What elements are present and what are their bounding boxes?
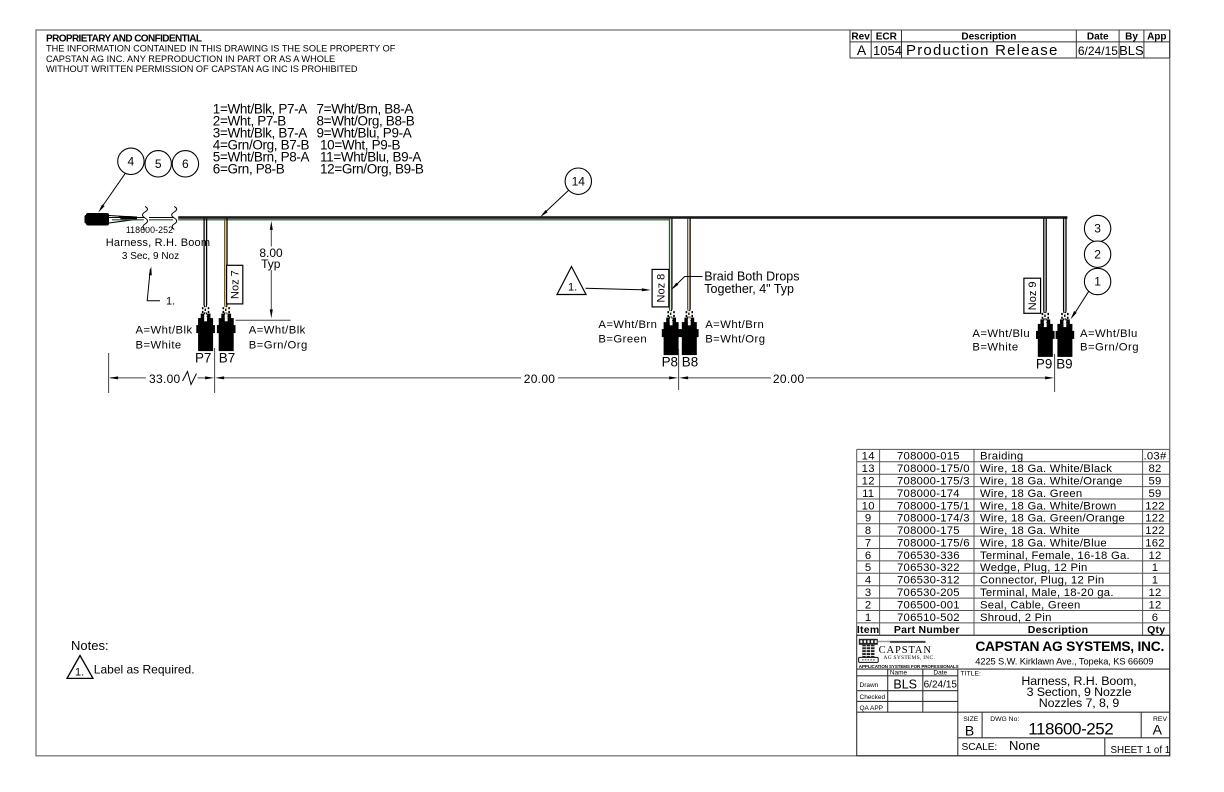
svg-text:14: 14 <box>862 451 875 463</box>
svg-text:Noz 8: Noz 8 <box>655 274 667 303</box>
svg-text:2: 2 <box>1094 247 1101 261</box>
svg-text:B=White: B=White <box>136 340 182 352</box>
svg-text:A=Wht/Blu: A=Wht/Blu <box>972 328 1030 340</box>
svg-text:B9: B9 <box>1056 357 1072 372</box>
svg-text:Label as Required.: Label as Required. <box>94 663 195 677</box>
svg-text:708000-175: 708000-175 <box>897 525 960 537</box>
svg-text:WITHOUT WRITTEN PERMISSION OF: WITHOUT WRITTEN PERMISSION OF CAPSTAN AG… <box>46 64 358 74</box>
svg-text:Notes:: Notes: <box>71 638 109 653</box>
svg-text:706530-336: 706530-336 <box>897 550 960 562</box>
svg-text:Wire, 18 Ga. White/Orange: Wire, 18 Ga. White/Orange <box>980 476 1123 488</box>
svg-text:59: 59 <box>1148 488 1161 500</box>
svg-text:706530-322: 706530-322 <box>897 562 960 574</box>
svg-text:1.: 1. <box>568 282 577 294</box>
svg-text:B=White: B=White <box>972 342 1018 354</box>
svg-text:DWG No:: DWG No: <box>990 716 1019 723</box>
svg-text:Wire, 18 Ga. White/Blue: Wire, 18 Ga. White/Blue <box>980 537 1107 549</box>
svg-text:B=Grn/Org: B=Grn/Org <box>249 340 308 352</box>
svg-text:Wire, 18 Ga. White/Brown: Wire, 18 Ga. White/Brown <box>980 500 1117 512</box>
svg-text:Seal, Cable, Green: Seal, Cable, Green <box>980 599 1081 611</box>
svg-text:Name: Name <box>890 669 908 676</box>
svg-text:1: 1 <box>1094 275 1101 289</box>
svg-text:A: A <box>857 42 867 58</box>
svg-text:SHEET 1 of 1: SHEET 1 of 1 <box>1111 745 1171 756</box>
svg-text:Production Release: Production Release <box>906 42 1059 59</box>
svg-text:6/24/15: 6/24/15 <box>924 680 958 691</box>
svg-text:By: By <box>1125 32 1138 43</box>
svg-text:CAPSTAN AG SYSTEMS, INC.: CAPSTAN AG SYSTEMS, INC. <box>975 639 1164 654</box>
svg-text:6: 6 <box>182 157 189 171</box>
svg-text:59: 59 <box>1148 476 1161 488</box>
svg-text:118600-252: 118600-252 <box>126 225 173 235</box>
svg-text:3 Sec, 9 Noz: 3 Sec, 9 Noz <box>122 251 179 262</box>
svg-text:1.: 1. <box>75 667 84 679</box>
svg-text:82: 82 <box>1148 463 1161 475</box>
svg-text:P7: P7 <box>195 350 211 365</box>
svg-text:Date: Date <box>1087 32 1109 43</box>
svg-text:706510-502: 706510-502 <box>897 612 960 624</box>
svg-text:Shroud, 2 Pin: Shroud, 2 Pin <box>980 612 1052 624</box>
svg-text:B8: B8 <box>682 355 698 370</box>
svg-text:11: 11 <box>862 488 874 500</box>
svg-text:1: 1 <box>865 612 872 624</box>
svg-text:10: 10 <box>862 500 875 512</box>
svg-text:Terminal, Male, 18-20 ga.: Terminal, Male, 18-20 ga. <box>980 587 1114 599</box>
svg-text:5: 5 <box>155 157 162 171</box>
svg-text:122: 122 <box>1145 525 1165 537</box>
svg-text:Checked: Checked <box>860 694 886 701</box>
svg-text:THE INFORMATION CONTAINED IN T: THE INFORMATION CONTAINED IN THIS DRAWIN… <box>46 44 396 54</box>
svg-text:3: 3 <box>865 587 872 599</box>
svg-text:P8: P8 <box>662 355 678 370</box>
svg-text:6: 6 <box>865 550 872 562</box>
svg-text:6/24/15: 6/24/15 <box>1078 44 1118 58</box>
svg-text:Typ: Typ <box>261 257 281 271</box>
svg-text:708000-174: 708000-174 <box>897 488 960 500</box>
svg-text:708000-015: 708000-015 <box>897 451 960 463</box>
svg-text:BLS: BLS <box>893 677 917 691</box>
svg-text:Connector, Plug, 12 Pin: Connector, Plug, 12 Pin <box>980 575 1104 587</box>
svg-text:A=Wht/Blk: A=Wht/Blk <box>249 325 306 337</box>
svg-text:B=Grn/Org: B=Grn/Org <box>1080 342 1139 354</box>
svg-text:ECR: ECR <box>876 32 898 43</box>
svg-text:Wire, 18 Ga. Green/Orange: Wire, 18 Ga. Green/Orange <box>980 513 1125 525</box>
svg-text:706530-312: 706530-312 <box>897 575 960 587</box>
svg-text:708000-175/3: 708000-175/3 <box>897 476 970 488</box>
svg-text:162: 162 <box>1145 537 1165 549</box>
svg-text:6=Grn, P8-B: 6=Grn, P8-B <box>213 161 285 176</box>
svg-text:708000-175/1: 708000-175/1 <box>897 500 970 512</box>
svg-text:1.: 1. <box>166 296 175 308</box>
svg-text:B7: B7 <box>219 350 235 365</box>
svg-text:13: 13 <box>862 463 875 475</box>
svg-text:12: 12 <box>1148 550 1161 562</box>
svg-text:Description: Description <box>1028 624 1089 636</box>
svg-text:12: 12 <box>862 476 875 488</box>
svg-text:CAPSTAN AG INC. ANY REPRODUCTI: CAPSTAN AG INC. ANY REPRODUCTION IN PART… <box>46 54 335 64</box>
svg-text:Drawn: Drawn <box>860 682 879 689</box>
svg-text:Wire, 18 Ga. Green: Wire, 18 Ga. Green <box>980 488 1082 500</box>
svg-text:A=Wht/Brn: A=Wht/Brn <box>598 319 657 331</box>
svg-text:Wedge, Plug, 12 Pin: Wedge, Plug, 12 Pin <box>980 562 1088 574</box>
svg-text:APPLICATION SYSTEMS FOR PROFES: APPLICATION SYSTEMS FOR PROFESSIONALS <box>859 664 959 669</box>
svg-text:3: 3 <box>1094 222 1101 236</box>
svg-text:1: 1 <box>1152 562 1159 574</box>
svg-text:118600-252: 118600-252 <box>1028 719 1113 738</box>
svg-text:708000-175/6: 708000-175/6 <box>897 537 970 549</box>
svg-text:33.00: 33.00 <box>149 372 181 386</box>
svg-text:SCALE:: SCALE: <box>962 742 998 753</box>
svg-text:BLS: BLS <box>1119 43 1144 58</box>
svg-text:Braiding: Braiding <box>980 451 1023 463</box>
svg-text:Noz 9: Noz 9 <box>1027 281 1039 310</box>
svg-text:708000-174/3: 708000-174/3 <box>897 513 970 525</box>
svg-text:20.00: 20.00 <box>773 372 805 386</box>
svg-text:B: B <box>965 722 974 738</box>
svg-text:A: A <box>1153 722 1163 738</box>
svg-text:7: 7 <box>865 537 872 549</box>
svg-text:706500-001: 706500-001 <box>897 599 960 611</box>
svg-text:AG SYSTEMS, INC.: AG SYSTEMS, INC. <box>884 655 936 661</box>
svg-text:1054: 1054 <box>873 43 902 58</box>
svg-text:Harness, R.H. Boom: Harness, R.H. Boom <box>106 237 210 249</box>
svg-text:Together, 4" Typ: Together, 4" Typ <box>704 282 794 296</box>
svg-text:6: 6 <box>1152 612 1159 624</box>
svg-text:QA APP: QA APP <box>860 705 884 712</box>
svg-text:.03#: .03# <box>1144 451 1167 463</box>
svg-text:12=Grn/Org, B9-B: 12=Grn/Org, B9-B <box>320 161 424 176</box>
svg-text:8: 8 <box>865 525 872 537</box>
svg-text:14: 14 <box>572 174 586 188</box>
svg-text:9: 9 <box>865 513 872 525</box>
svg-text:Part Number: Part Number <box>894 624 960 636</box>
svg-text:Date: Date <box>933 669 947 676</box>
svg-text:Qty: Qty <box>1147 624 1165 636</box>
svg-text:5: 5 <box>865 562 872 574</box>
svg-text:122: 122 <box>1145 513 1165 525</box>
svg-text:122: 122 <box>1145 500 1165 512</box>
svg-text:12: 12 <box>1148 599 1161 611</box>
svg-text:Wire, 18 Ga. White: Wire, 18 Ga. White <box>980 525 1080 537</box>
svg-text:A=Wht/Brn: A=Wht/Brn <box>705 319 764 331</box>
svg-text:706530-205: 706530-205 <box>897 587 960 599</box>
svg-text:A=Wht/Blu: A=Wht/Blu <box>1080 328 1138 340</box>
svg-text:4225 S.W. Kirklawn Ave., Topek: 4225 S.W. Kirklawn Ave., Topeka, KS 6660… <box>975 657 1153 667</box>
svg-text:4: 4 <box>865 575 872 587</box>
svg-text:708000-175/0: 708000-175/0 <box>897 463 970 475</box>
svg-text:1: 1 <box>1152 575 1159 587</box>
svg-text:Noz 7: Noz 7 <box>229 270 241 299</box>
svg-text:Wire, 18 Ga. White/Black: Wire, 18 Ga. White/Black <box>980 463 1112 475</box>
svg-text:B=Green: B=Green <box>598 333 647 345</box>
svg-text:P9: P9 <box>1036 357 1052 372</box>
svg-text:None: None <box>1009 738 1040 753</box>
svg-text:Terminal, Female, 16-18 Ga.: Terminal, Female, 16-18 Ga. <box>980 550 1130 562</box>
svg-text:2: 2 <box>865 599 872 611</box>
svg-text:A=Wht/Blk: A=Wht/Blk <box>136 325 193 337</box>
svg-text:12: 12 <box>1148 587 1161 599</box>
svg-text:Item: Item <box>857 624 880 636</box>
svg-text:Nozzles 7, 8, 9: Nozzles 7, 8, 9 <box>1039 696 1120 710</box>
svg-text:4: 4 <box>128 155 135 169</box>
svg-text:TITLE:: TITLE: <box>961 671 982 678</box>
svg-text:App: App <box>1147 32 1166 43</box>
svg-text:B=Wht/Org: B=Wht/Org <box>705 333 765 345</box>
svg-text:20.00: 20.00 <box>524 372 556 386</box>
